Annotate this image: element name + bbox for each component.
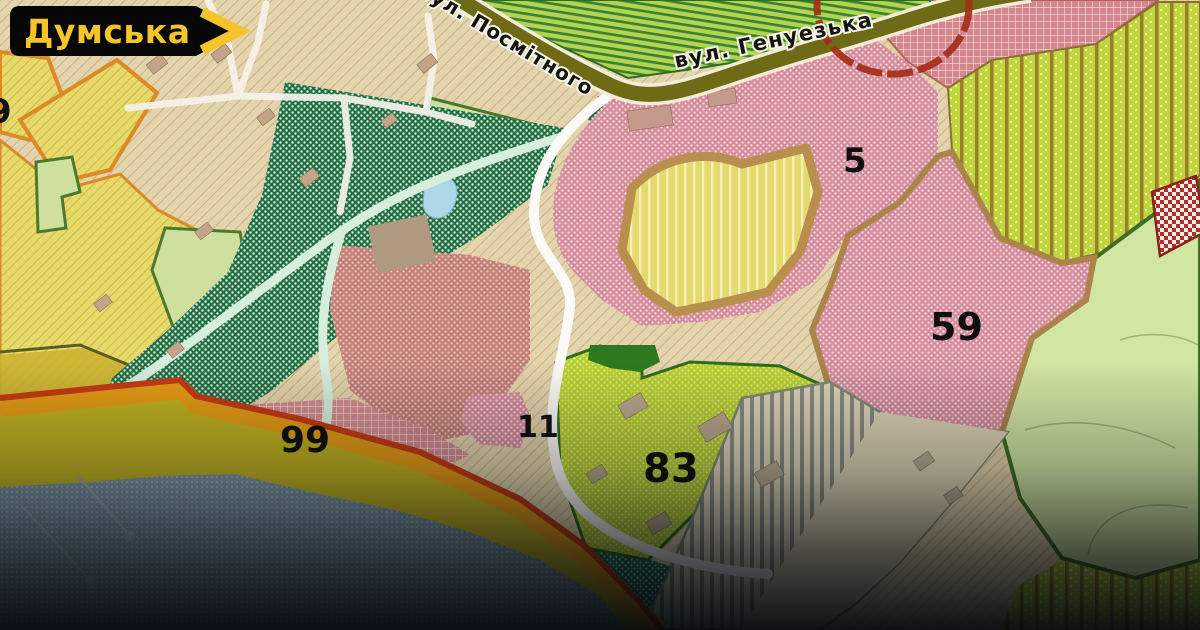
zone-number-9: 9 — [0, 92, 12, 132]
og-card: вул. Посмітного вул. Генуезька 9 5 59 83… — [0, 0, 1200, 630]
zone-number-5: 5 — [843, 141, 867, 181]
zoning-map: вул. Посмітного вул. Генуезька 9 5 59 83… — [0, 0, 1200, 630]
bottom-vignette — [0, 360, 1200, 630]
zone-number-59: 59 — [930, 305, 983, 349]
dumska-logo-badge: Думська — [0, 0, 270, 68]
badge-label: Думська — [24, 12, 190, 51]
